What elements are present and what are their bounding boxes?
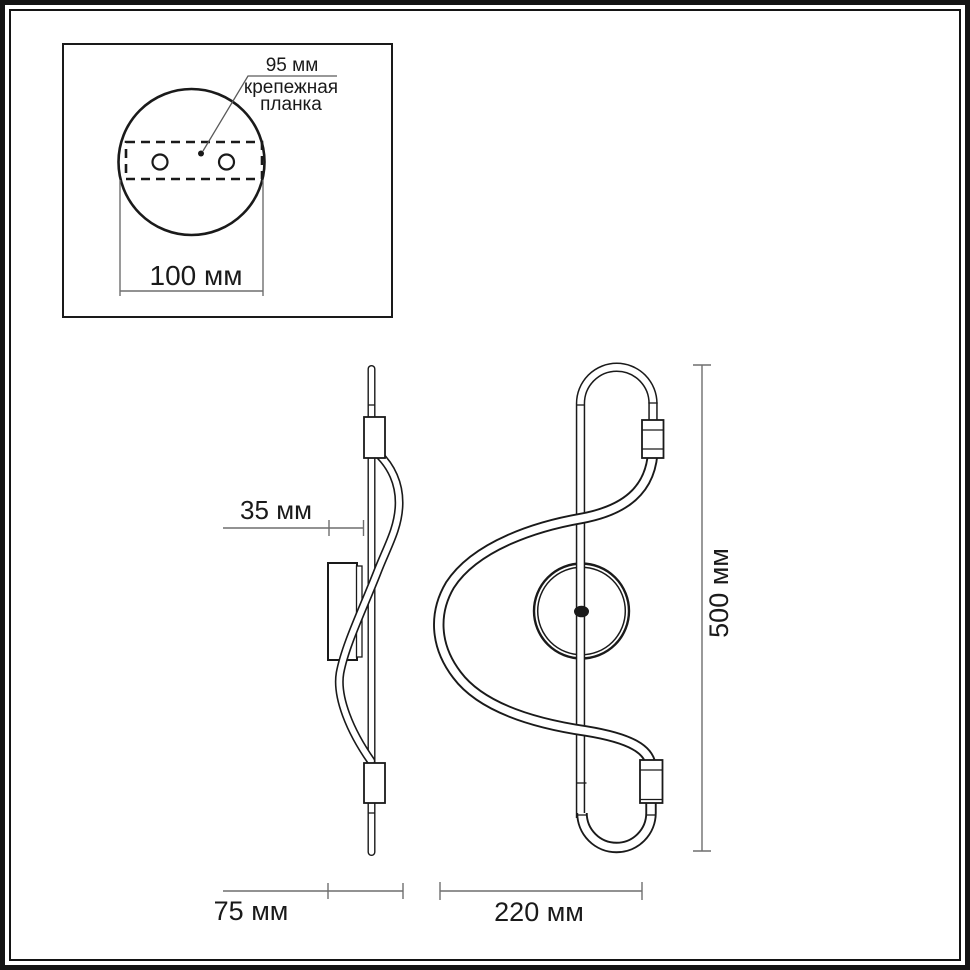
front-top-socket-collar — [642, 420, 664, 458]
drawing-canvas: 95 мм крепежная планка 100 мм — [0, 0, 970, 970]
mount-detail-inset: 95 мм крепежная планка 100 мм — [63, 44, 392, 317]
front-bottom-socket-collar — [640, 760, 663, 803]
screw-hole-right — [219, 155, 234, 170]
hole-spacing-label: 95 мм — [266, 55, 319, 76]
wall-offset-label: 35 мм — [240, 495, 312, 525]
plate-center-dot — [574, 606, 589, 618]
wall-mount-box — [328, 563, 357, 660]
plate-width-label: 100 мм — [150, 260, 243, 291]
side-view: 35 мм 75 мм — [214, 369, 403, 926]
side-top-socket-collar — [364, 417, 385, 458]
width-label: 220 мм — [494, 897, 584, 927]
side-bottom-socket-collar — [364, 763, 385, 803]
leader-anchor-dot — [198, 151, 204, 157]
front-s-curve-tube — [439, 446, 653, 848]
mount-bracket-dashed-rect — [126, 142, 262, 179]
bracket-label-line2: планка — [260, 94, 322, 115]
depth-label: 75 мм — [214, 896, 289, 926]
front-view: 500 мм 220 мм — [439, 365, 734, 927]
screw-hole-left — [153, 155, 168, 170]
mount-plate-circle — [119, 89, 265, 235]
height-label: 500 мм — [704, 548, 734, 638]
